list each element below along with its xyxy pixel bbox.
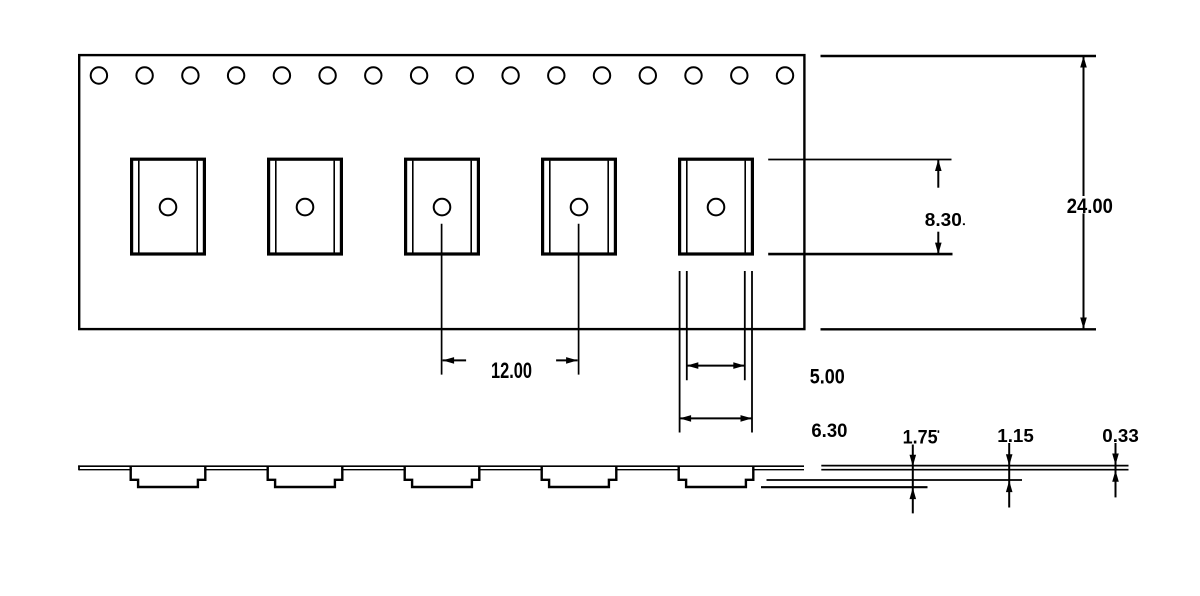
svg-text:12.00: 12.00 <box>491 358 532 383</box>
svg-text:8.30: 8.30 <box>925 209 962 230</box>
svg-text:5.00: 5.00 <box>810 366 845 389</box>
svg-text:0.33: 0.33 <box>1102 425 1139 446</box>
svg-text:6.30: 6.30 <box>811 421 847 442</box>
svg-text:1.15: 1.15 <box>997 425 1034 446</box>
svg-text:1.75: 1.75 <box>903 427 938 449</box>
svg-text:24.00: 24.00 <box>1067 195 1113 218</box>
